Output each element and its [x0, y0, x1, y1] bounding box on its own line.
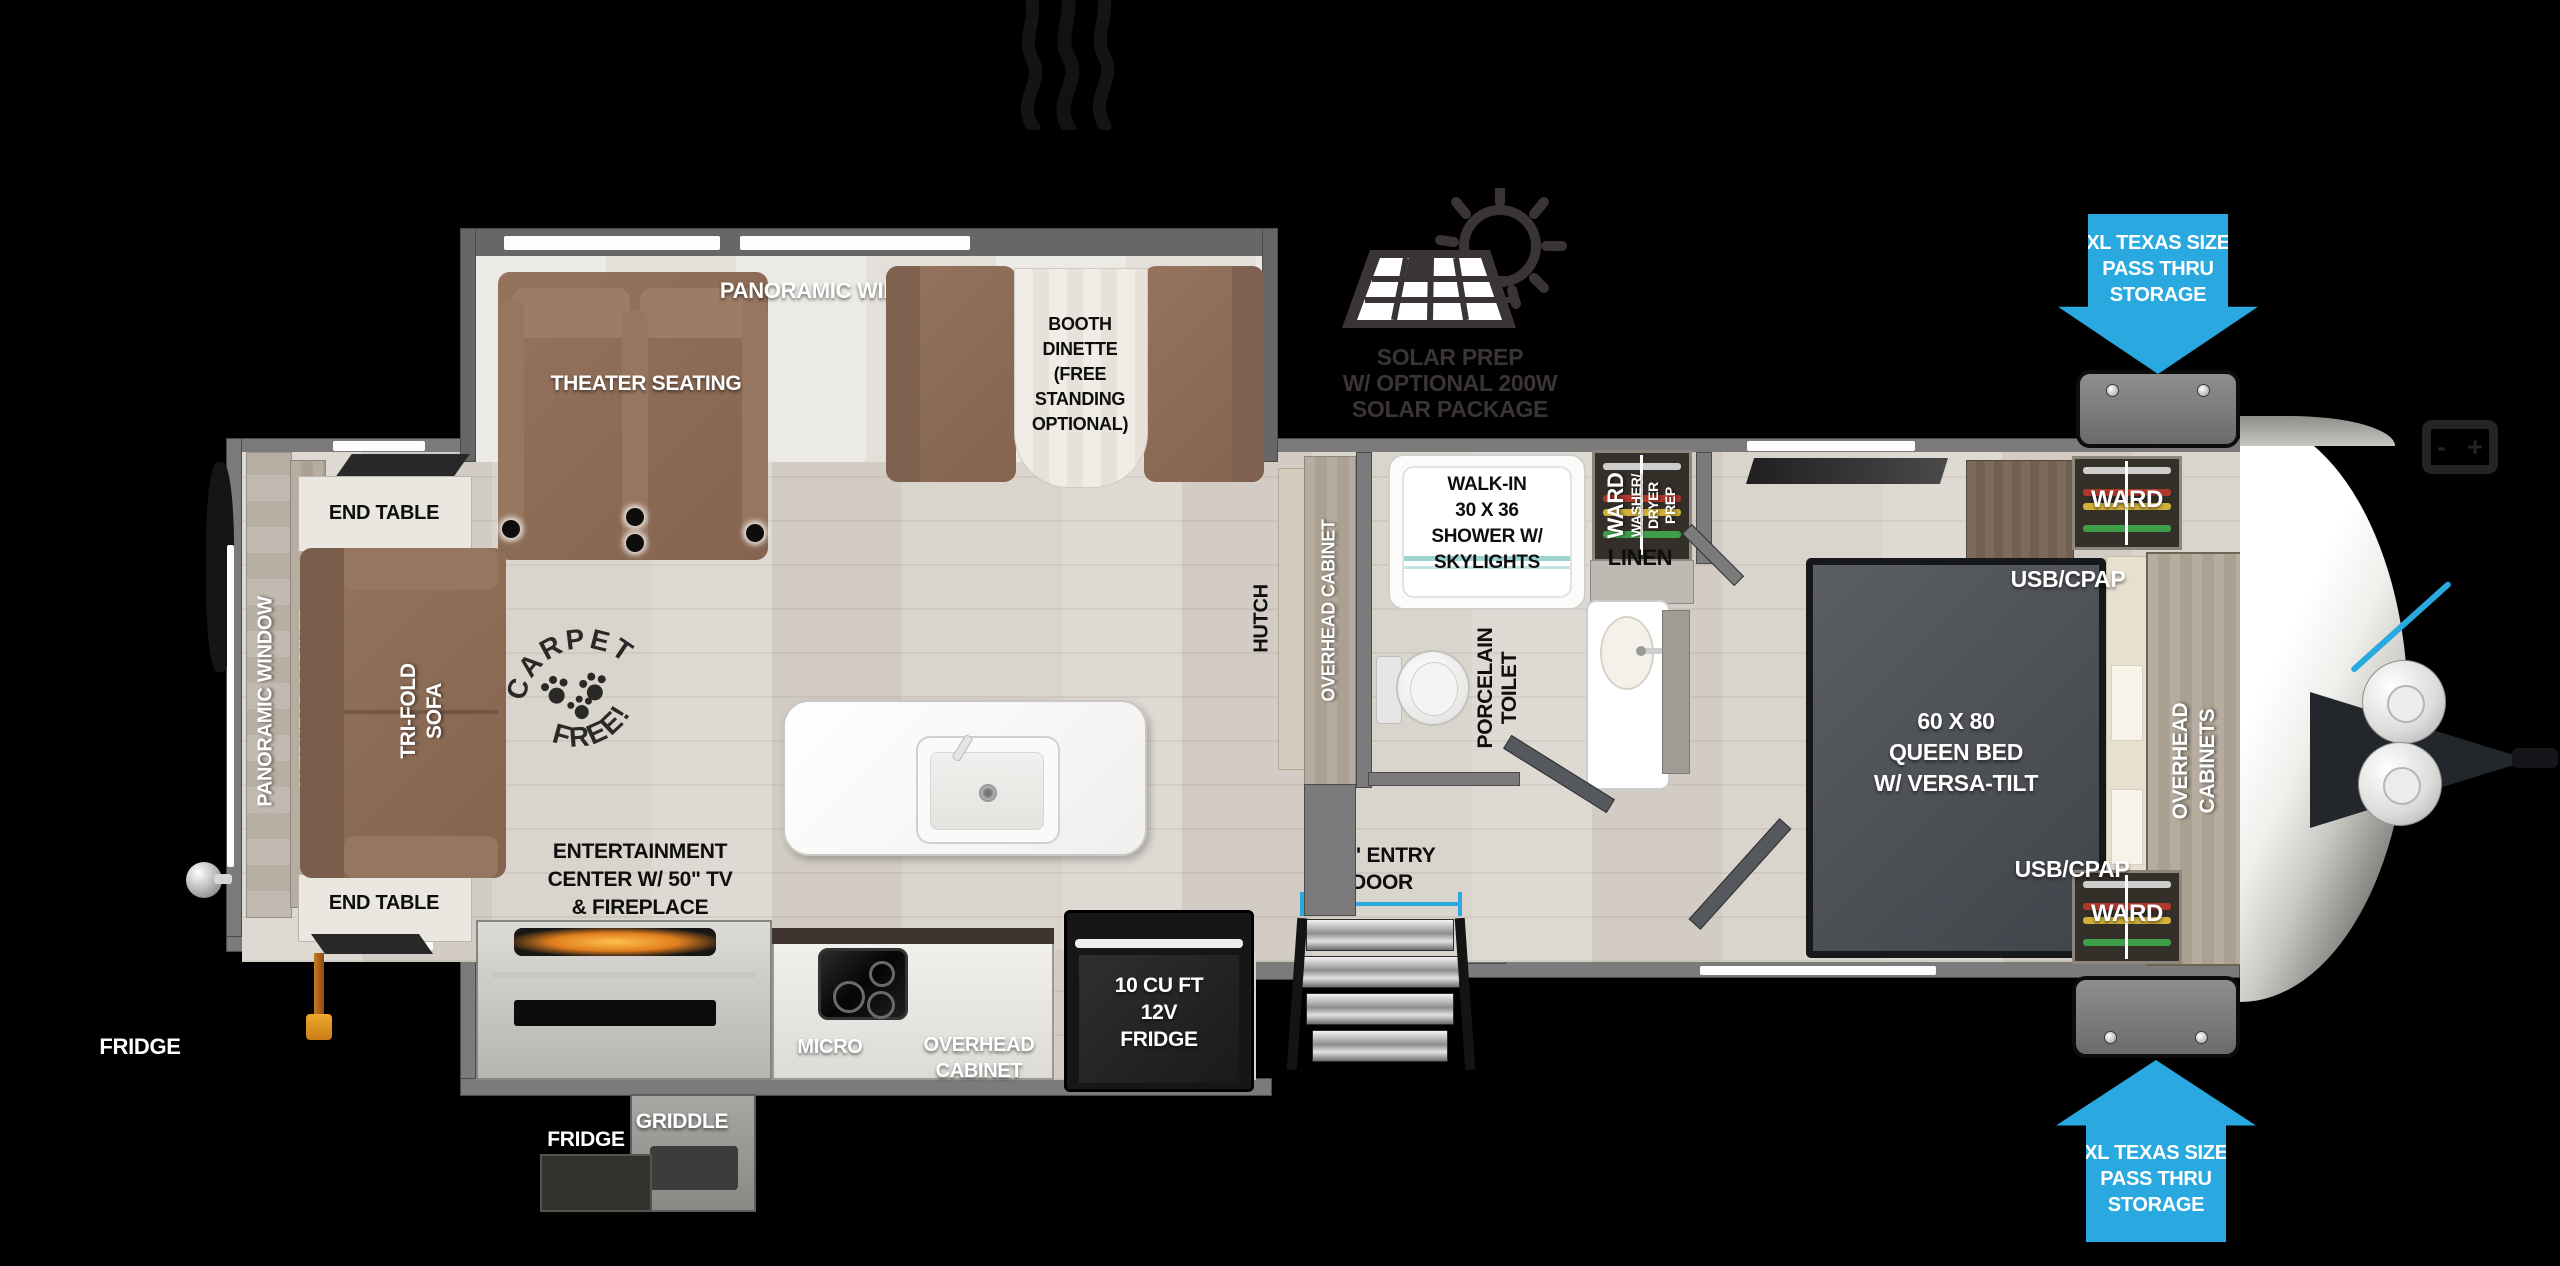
step-tread: [1306, 919, 1454, 951]
tv-icon: [514, 1000, 716, 1026]
step-tread: [1300, 956, 1460, 988]
front-cap-roofline: [2240, 416, 2395, 446]
window-top-rear: [333, 441, 425, 451]
wall-bath-left: [1356, 452, 1372, 788]
dinette-label: BOOTH DINETTE (FREE STANDING OPTIONAL): [1014, 312, 1146, 437]
shower-label: WALK-IN 30 X 36 SHOWER W/ SKYLIGHTS: [1392, 472, 1582, 576]
sofa-armrest-top: [344, 548, 498, 590]
burner-icon: [869, 961, 895, 987]
fireplace: [514, 928, 716, 956]
solar-panel-icon: [1330, 188, 1590, 343]
step-tread: [1312, 1030, 1448, 1062]
sofa-armrest-bottom: [344, 836, 498, 878]
wall-hutch-lower: [1304, 784, 1356, 916]
griddle-plate: [650, 1146, 738, 1190]
cupholder-icon: [626, 534, 644, 552]
end-table-bottom-label: END TABLE: [300, 892, 468, 915]
slideout-window-2: [740, 236, 970, 250]
kitchen-wall-cabinet-label: OVERHEAD CABINET: [1319, 461, 1340, 761]
tank-valve: [2383, 767, 2421, 805]
toilet-seat: [1410, 662, 1458, 716]
linen-label: LINEN: [1590, 545, 1690, 571]
bath-mirror-cabinet: [1662, 610, 1690, 774]
entertainment-shelf: [492, 972, 756, 978]
propane-tank-icon: [2358, 742, 2442, 826]
usb-cpap-bottom-label: USB/CPAP: [1984, 856, 2160, 883]
hutch-counter: [1278, 468, 1306, 770]
storage-arrow-bottom-label: XL TEXAS SIZE PASS THRU STORAGE: [2056, 1140, 2256, 1218]
micro-label: MICRO: [778, 1036, 882, 1059]
pass-thru-box-bottom: [2072, 976, 2240, 1058]
screw-icon: [2197, 384, 2210, 397]
outdoor-fridge-label: FRIDGE: [534, 1128, 638, 1152]
end-table-top-label: END TABLE: [300, 502, 468, 525]
rear-bumper-stem: [214, 874, 232, 884]
hutch-label: HUTCH: [1251, 564, 1274, 674]
rear-window-strip: [227, 545, 234, 867]
battery-minus: -: [2437, 429, 2446, 465]
propane-tank-icon: [2362, 660, 2446, 744]
cooktop: [818, 948, 908, 1020]
corner-shade-top: [336, 454, 469, 476]
cupholder-icon: [746, 524, 764, 542]
storage-arrow-top-label: XL TEXAS SIZE PASS THRU STORAGE: [2058, 230, 2258, 308]
sink-drain-icon: [979, 784, 997, 802]
bedside-cabinet: [1966, 460, 2074, 562]
step-tread: [1306, 993, 1454, 1025]
storage-arrow-top: XL TEXAS SIZE PASS THRU STORAGE: [2058, 214, 2258, 374]
slideout-wall-left: [460, 228, 476, 462]
cupholder-icon: [502, 520, 520, 538]
panoramic-window-label: PANORAMIC WINDOW: [255, 549, 278, 855]
screw-icon: [2195, 1031, 2208, 1044]
dinette-bench-right-back: [1232, 266, 1264, 482]
theater-seating-label: THEATER SEATING: [548, 372, 744, 396]
screw-icon: [2104, 1031, 2117, 1044]
theater-armrest-left: [498, 300, 524, 542]
window-top-bedroom: [1747, 441, 1915, 451]
wall-toilet-bottom: [1368, 772, 1520, 786]
stabilizer-jack-foot: [306, 1014, 332, 1040]
nightstand-notch: [2111, 665, 2143, 741]
pass-thru-box-top: [2076, 370, 2240, 448]
theater-armrest-right: [742, 300, 768, 542]
bedroom-window-shade: [1746, 458, 1948, 484]
solar-caption: SOLAR PREP W/ OPTIONAL 200W SOLAR PACKAG…: [1300, 344, 1600, 422]
kitchen-overhead-cabinet-label: OVERHEAD CABINET: [908, 1032, 1050, 1084]
window-bottom-bedroom: [1700, 966, 1936, 975]
slideout-wall-right: [1262, 228, 1278, 462]
steam-squiggles-icon: [1002, 0, 1142, 130]
floorplan-canvas: SOLAR PREP W/ OPTIONAL 200W SOLAR PACKAG…: [0, 0, 2560, 1266]
entertainment-label: ENTERTAINMENT CENTER W/ 50" TV & FIREPLA…: [490, 838, 790, 922]
cupholder-icon: [626, 508, 644, 526]
slideout-window-1: [504, 236, 720, 250]
fridge-gloss: [1075, 939, 1243, 948]
kitchen-counter-edge: [772, 928, 1054, 944]
burner-icon: [833, 981, 865, 1013]
nightstand-notch: [2111, 789, 2143, 865]
corner-shade-bottom: [311, 934, 433, 954]
sofa-back: [300, 548, 344, 878]
fridge-12v-label: 10 CU FT 12V FRIDGE: [1078, 972, 1240, 1053]
battery-icon: - +: [2422, 420, 2498, 474]
dinette-bench-left-back: [886, 266, 920, 482]
bedroom-ward-bottom-label: WARD: [2072, 900, 2182, 928]
rear-fridge-label: FRIDGE: [80, 1034, 200, 1060]
tank-valve: [2387, 685, 2425, 723]
battery-plus: +: [2467, 429, 2483, 465]
bed-label: 60 X 80 QUEEN BED W/ VERSA-TILT: [1826, 706, 2086, 799]
theater-seat-back-1: [512, 288, 630, 338]
bath-ward-label: WARD WASHER/ DRYER PREP: [1604, 453, 1679, 558]
outdoor-fridge: [540, 1154, 652, 1212]
screw-icon: [2106, 384, 2119, 397]
usb-cpap-top-label: USB/CPAP: [1980, 566, 2156, 593]
bedroom-overhead-cabinets-label: OVERHEAD CABINETS: [2167, 656, 2221, 866]
bedroom-ward-top-label: WARD: [2072, 486, 2182, 514]
entry-door-dim-tick-right: [1458, 892, 1462, 916]
fireplace-glow: [514, 928, 716, 956]
entry-steps: [1298, 914, 1464, 1074]
storage-arrow-bottom: XL TEXAS SIZE PASS THRU STORAGE: [2056, 1060, 2256, 1242]
sofa-label: TRI-FOLD SOFA: [396, 636, 448, 786]
bath-faucet-dot: [1636, 646, 1646, 656]
burner-icon: [867, 991, 895, 1019]
stabilizer-jack-rod: [314, 953, 324, 1019]
